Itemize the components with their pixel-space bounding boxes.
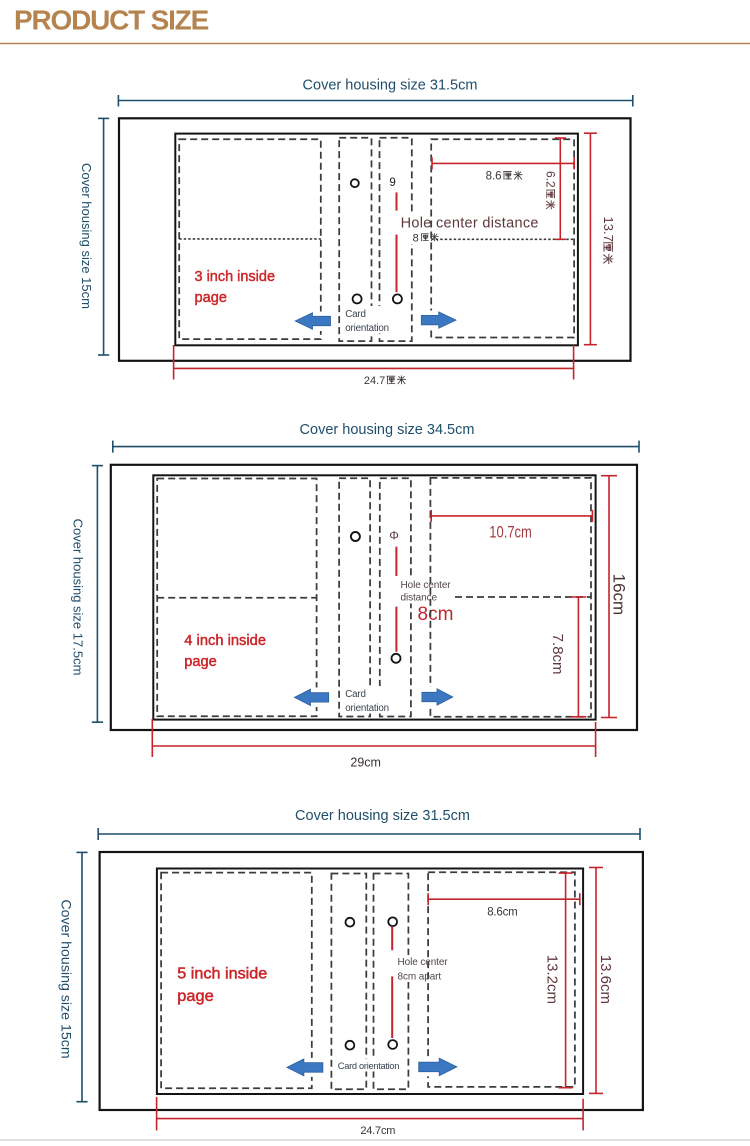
svg-text:3 inch inside: 3 inch inside: [195, 269, 276, 285]
svg-text:29cm: 29cm: [350, 756, 381, 770]
svg-text:orientation: orientation: [345, 323, 389, 334]
svg-text:13.6cm: 13.6cm: [597, 955, 614, 1004]
svg-text:Φ: Φ: [389, 529, 399, 543]
svg-text:8cm apart: 8cm apart: [398, 972, 442, 983]
svg-text:13.2cm: 13.2cm: [544, 955, 561, 1004]
svg-text:page: page: [177, 988, 213, 1005]
svg-text:13.7: 13.7: [601, 217, 616, 242]
svg-text:Card: Card: [345, 689, 365, 700]
svg-text:Cover housing size 17.5cm: Cover housing size 17.5cm: [71, 519, 86, 676]
svg-text:8: 8: [413, 232, 419, 244]
svg-text:24.7: 24.7: [364, 375, 385, 387]
svg-text:Hole center distance: Hole center distance: [401, 216, 539, 232]
svg-text:24.7cm: 24.7cm: [360, 1125, 395, 1137]
svg-text:6.2: 6.2: [544, 171, 558, 188]
svg-text:Cover housing size 15cm: Cover housing size 15cm: [79, 163, 94, 309]
svg-text:distance: distance: [401, 593, 438, 604]
svg-text:orientation: orientation: [345, 703, 389, 714]
svg-text:page: page: [195, 290, 228, 306]
svg-text:7.8cm: 7.8cm: [549, 634, 566, 675]
svg-text:Hole center: Hole center: [398, 957, 449, 968]
svg-text:9: 9: [389, 177, 395, 189]
svg-text:Cover housing size 15cm: Cover housing size 15cm: [58, 899, 74, 1058]
svg-text:Cover housing size 34.5cm: Cover housing size 34.5cm: [300, 422, 475, 438]
svg-text:Hole center: Hole center: [401, 580, 452, 591]
svg-text:16cm: 16cm: [610, 574, 629, 616]
svg-text:8.6: 8.6: [486, 171, 502, 183]
svg-text:10.7cm: 10.7cm: [489, 522, 532, 541]
svg-text:Cover housing size 31.5cm: Cover housing size 31.5cm: [295, 808, 470, 824]
svg-text:5 inch inside: 5 inch inside: [177, 966, 267, 983]
svg-text:8cm: 8cm: [418, 604, 454, 625]
svg-text:Card orientation: Card orientation: [338, 1061, 399, 1071]
svg-text:Cover housing size 31.5cm: Cover housing size 31.5cm: [303, 78, 478, 94]
svg-text:4 inch inside: 4 inch inside: [184, 633, 266, 649]
svg-text:Card: Card: [345, 309, 365, 320]
svg-text:page: page: [184, 654, 217, 670]
svg-text:PRODUCT SIZE: PRODUCT SIZE: [14, 5, 209, 36]
svg-text:8.6cm: 8.6cm: [487, 907, 517, 919]
